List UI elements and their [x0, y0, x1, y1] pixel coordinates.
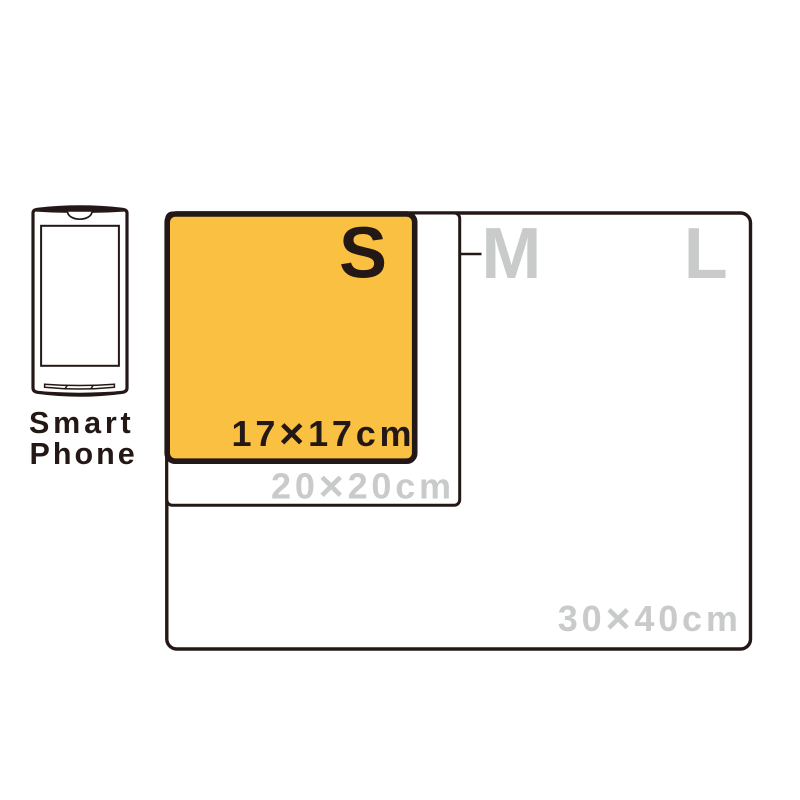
- svg-text:L: L: [684, 214, 728, 294]
- svg-text:Phone: Phone: [30, 437, 138, 471]
- svg-text:Smart: Smart: [29, 406, 134, 440]
- svg-text:20×20cm: 20×20cm: [271, 463, 455, 511]
- svg-text:30×40cm: 30×40cm: [558, 595, 742, 643]
- svg-text:17×17cm: 17×17cm: [232, 410, 416, 458]
- svg-text:S: S: [339, 213, 387, 293]
- svg-text:M: M: [481, 214, 541, 294]
